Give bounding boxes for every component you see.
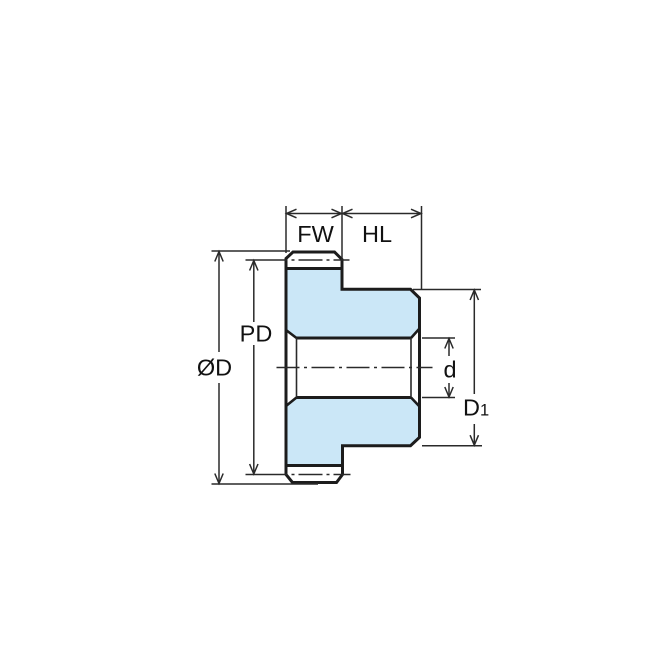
svg-text:FW: FW xyxy=(297,221,334,247)
svg-text:d: d xyxy=(443,357,456,383)
svg-text:ØD: ØD xyxy=(197,355,232,381)
svg-text:PD: PD xyxy=(240,321,273,347)
svg-text:HL: HL xyxy=(362,221,392,247)
